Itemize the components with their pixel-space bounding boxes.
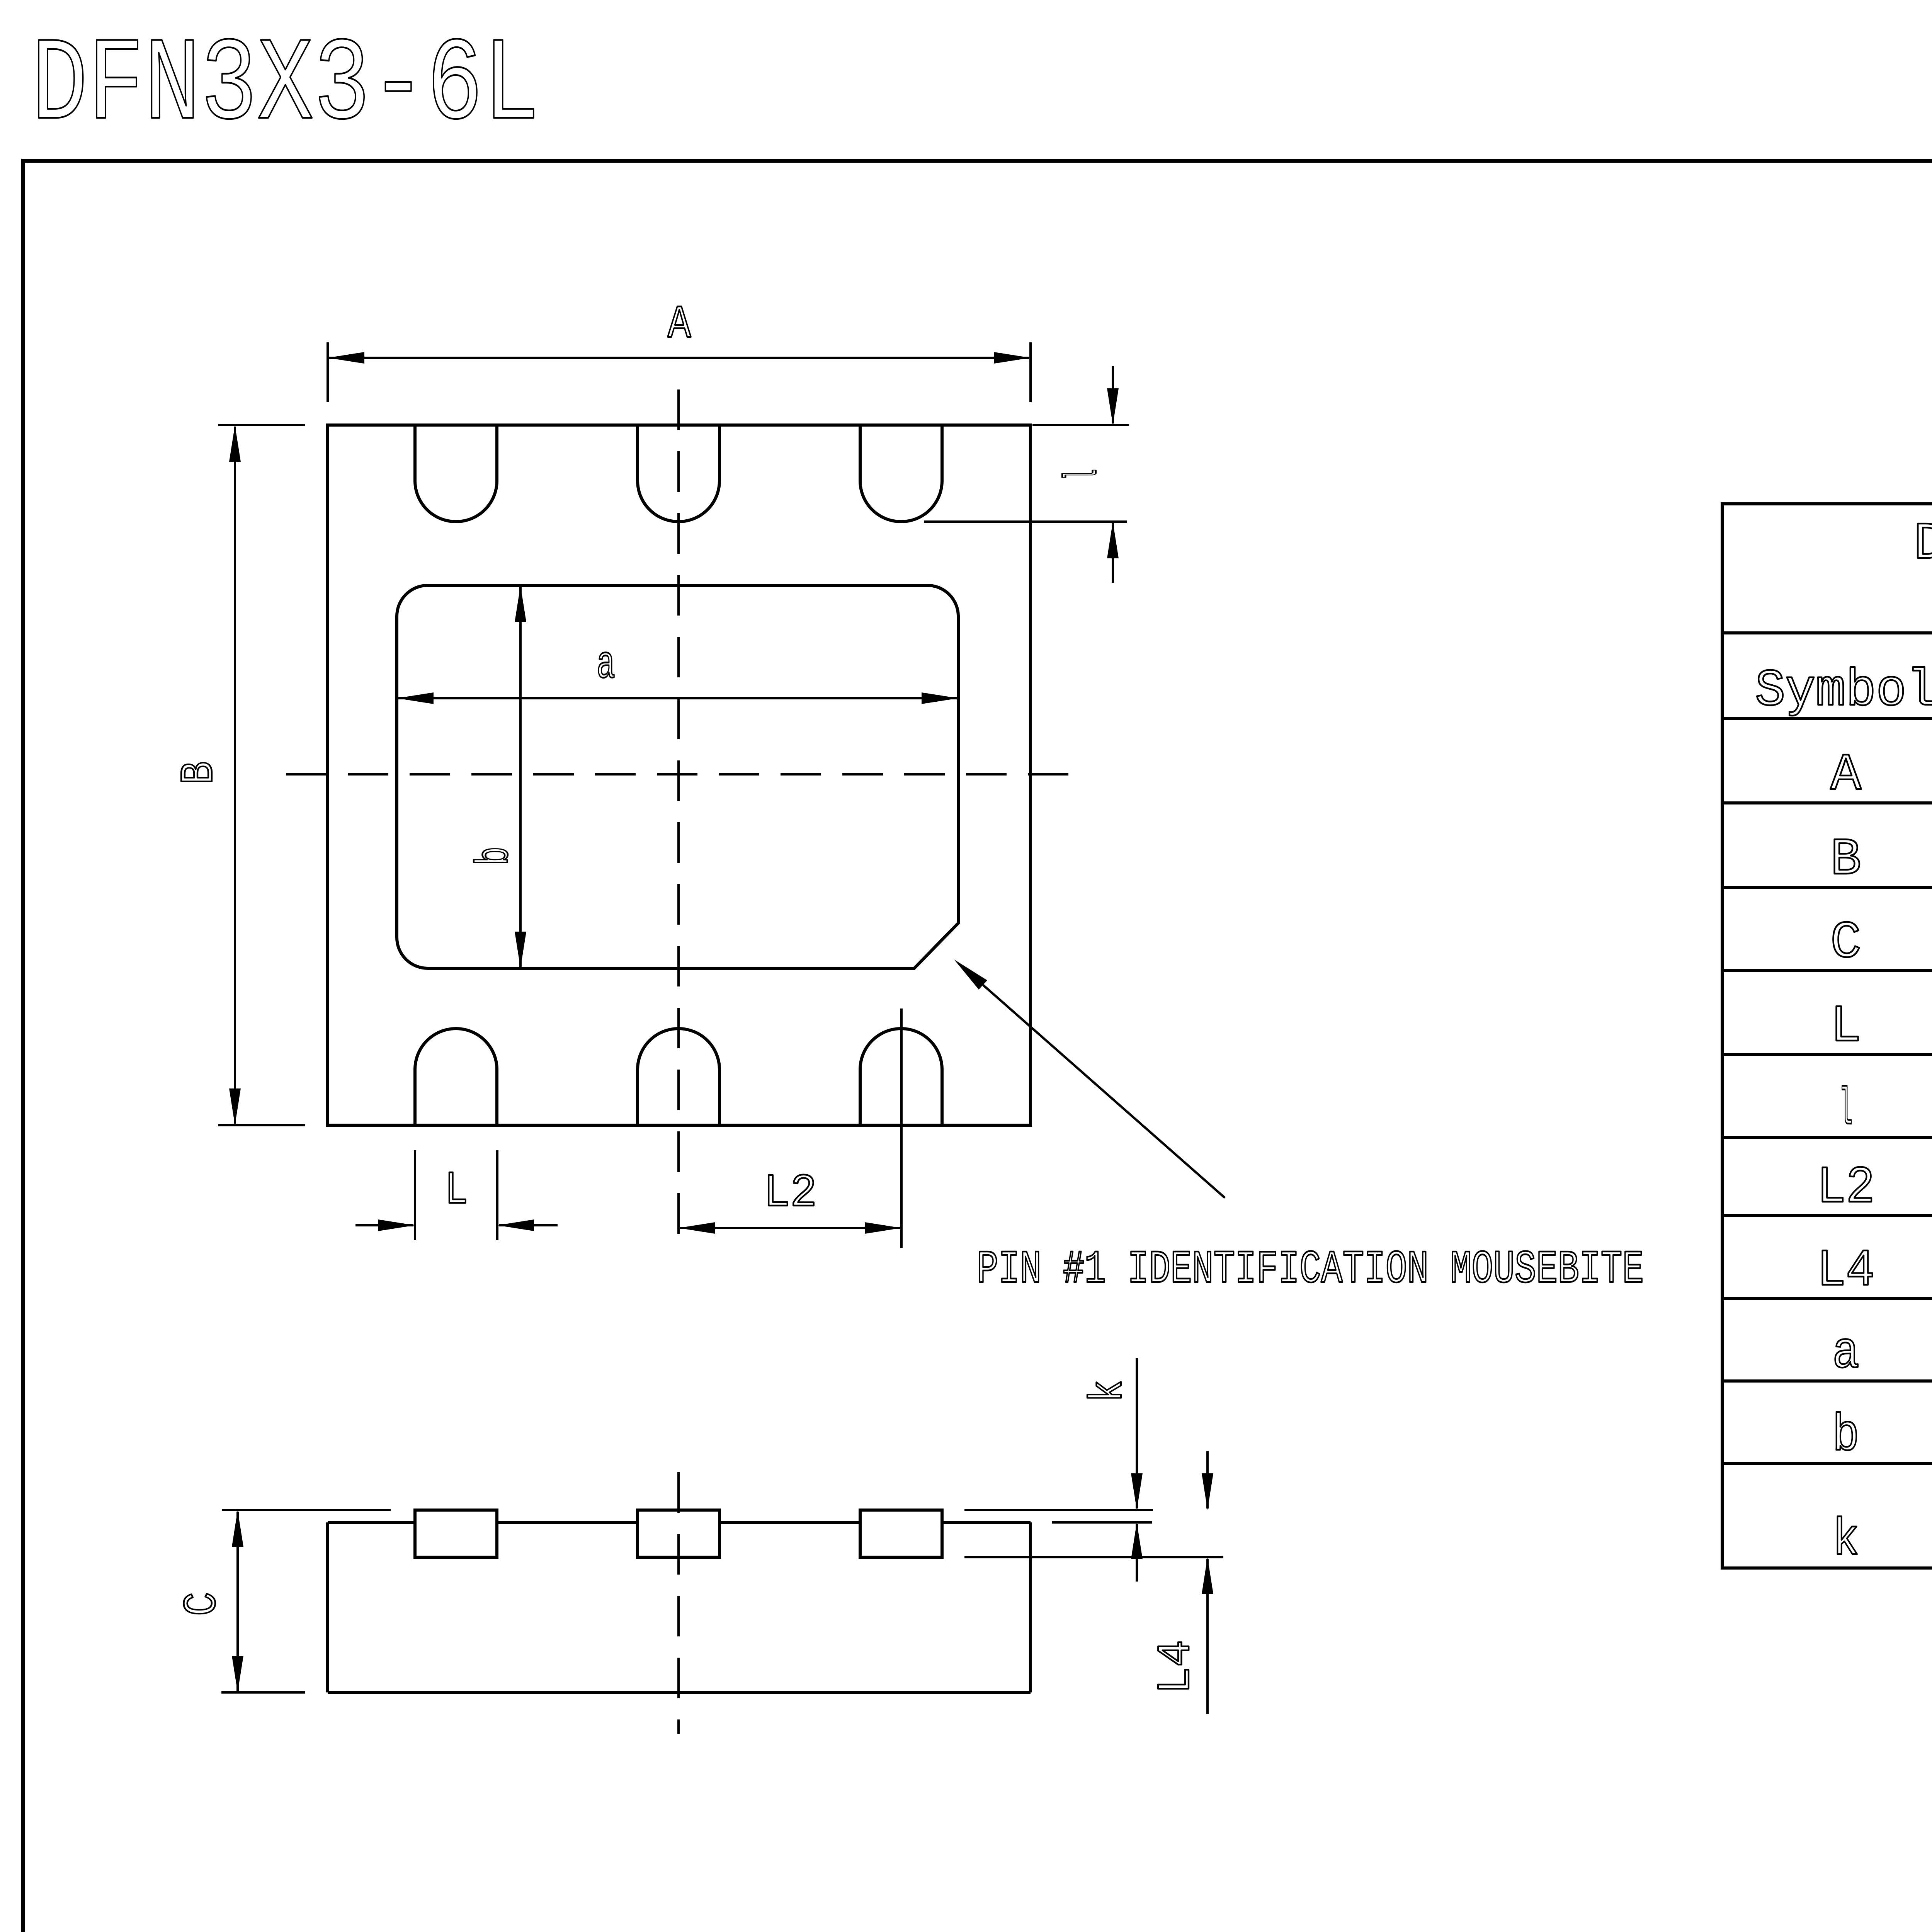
svg-text:Dimensions In: Dimensions In [1913, 515, 1932, 574]
svg-text:a: a [1832, 1324, 1859, 1383]
svg-text:b: b [1832, 1406, 1859, 1466]
svg-text:C: C [1830, 913, 1861, 973]
svg-text:k: k [1832, 1511, 1859, 1570]
svg-text:A: A [668, 299, 691, 351]
svg-text:B: B [1830, 830, 1861, 889]
svg-text:L2: L2 [1817, 1158, 1875, 1218]
svg-text:L4: L4 [1817, 1242, 1875, 1301]
svg-text:k: k [1083, 1380, 1135, 1402]
svg-text:L4: L4 [1150, 1640, 1203, 1694]
svg-text:A: A [1830, 746, 1861, 805]
svg-text:L: L [445, 1165, 468, 1217]
svg-text:b: b [469, 847, 522, 865]
svg-text:C: C [177, 1592, 229, 1616]
svg-text:L2: L2 [764, 1167, 817, 1220]
svg-text:l: l [1058, 469, 1110, 480]
svg-text:DFN3X3-6L: DFN3X3-6L [31, 19, 539, 153]
svg-text:l: l [1839, 1080, 1853, 1139]
svg-text:B: B [173, 761, 226, 784]
svg-text:Symbol: Symbol [1755, 662, 1932, 721]
svg-text:L: L [1830, 997, 1861, 1056]
svg-text:PIN #1 IDENTIFICATION MOUSEBIT: PIN #1 IDENTIFICATION MOUSEBITE [977, 1244, 1644, 1296]
svg-text:a: a [597, 639, 615, 692]
